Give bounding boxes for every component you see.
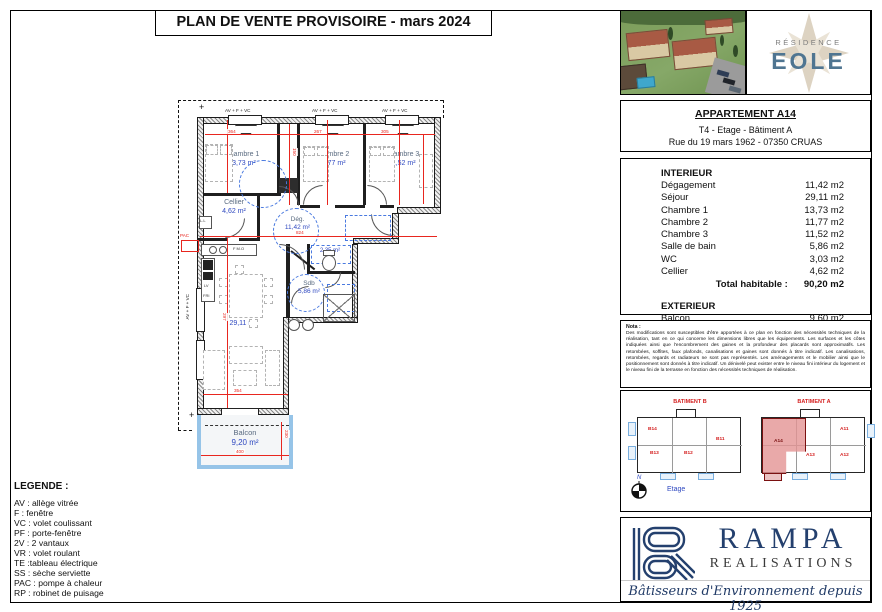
dimension-line [281, 422, 282, 460]
row-label: Séjour [661, 192, 688, 204]
unit-label-a13: A13 [806, 454, 815, 459]
pillow [370, 147, 381, 156]
row-value: 11,42 m2 [805, 180, 844, 192]
row-label: Dégagement [661, 180, 715, 192]
floor-label: Etage [667, 486, 685, 493]
dimension-line [201, 455, 289, 456]
unit-label-b12: B12 [684, 452, 693, 457]
dimension-line [399, 120, 400, 205]
heat-pump-box [181, 240, 199, 252]
washing-machine-label: L.L [200, 219, 206, 223]
unit-a14-highlight [762, 418, 806, 474]
balcony-facade-dashed [205, 425, 289, 426]
dimension-line [200, 236, 437, 237]
dimension-value: 354 [233, 388, 243, 393]
wall-corridor [300, 205, 320, 208]
legend-item: AV : allège vitrée [14, 499, 78, 508]
row-value: 5,86 m2 [810, 241, 844, 253]
row-value: 29,11 m2 [805, 192, 844, 204]
residence-aerial-photo [620, 10, 746, 95]
table-row: Salle de bain5,86 m2 [621, 241, 870, 253]
sofa-2 [229, 346, 263, 364]
compass-icon [629, 481, 649, 501]
nota-body: Des modifications sont susceptibles d'êt… [621, 330, 870, 376]
keyplan-building-b: B14 B11 B13 B12 [637, 417, 741, 473]
chair [235, 265, 244, 274]
window-label: AV + F + VC [312, 108, 337, 113]
window-label-vertical: AV + F + VC [185, 294, 190, 319]
toilet [322, 255, 336, 271]
heat-pump-label: PAC [180, 234, 189, 239]
legend-item: VC : volet coulissant [14, 519, 92, 528]
floor-plan: + + [175, 88, 470, 483]
dimension-value: 400 [235, 449, 245, 454]
table-row: Chambre 113,73 m2 [621, 205, 870, 217]
dimension-line [205, 134, 435, 135]
balcony-marker [698, 473, 714, 480]
rampa-subtitle: REALISATIONS [699, 556, 867, 572]
wall-exterior-step [397, 207, 441, 214]
unit-label-b11: B11 [716, 438, 725, 443]
rampa-logo-box: RAMPA REALISATIONS Bâtisseurs d'Environn… [620, 517, 871, 602]
nota-title: Nota : [621, 321, 870, 330]
window-shutter-icon [392, 125, 414, 134]
unit-label-a12: A12 [840, 454, 849, 459]
oven-icon [203, 272, 213, 280]
pillow [206, 145, 218, 155]
row-label: WC [661, 254, 677, 266]
pillow [220, 145, 232, 155]
dimension-line [227, 238, 228, 408]
balcony-marker [830, 473, 846, 480]
plan-de-vente-sheet: PLAN DE VENTE PROVISOIRE - mars 2024 RÉS… [0, 0, 882, 612]
total-label: Total habitable : [716, 278, 788, 291]
eole-name: EOLE [747, 48, 870, 75]
window-label: AV + F + VC [225, 108, 250, 113]
window-label: AV + F + VC [382, 108, 407, 113]
rampa-r-maze-icon [631, 526, 695, 582]
fridge-label: FRI [203, 294, 209, 298]
apartment-type-line: T4 - Etage - Bâtiment A [621, 124, 870, 136]
row-value: 11,77 m2 [805, 217, 844, 229]
survey-cross: + [189, 410, 194, 420]
dimension-line [289, 124, 290, 205]
dimension-value: 824 [295, 230, 305, 235]
room-area: 4,62 m² [209, 207, 259, 216]
dimension-value: 297 [221, 313, 228, 321]
chair [264, 295, 273, 304]
dimension-line [327, 120, 328, 205]
apartment-title: APPARTEMENT A14 [621, 108, 870, 120]
legend-item: RP : robinet de puisage [14, 589, 104, 598]
table-row: Séjour29,11 m2 [621, 192, 870, 204]
keyplan-box: BATIMENT B BATIMENT A B14 B11 B13 B12 [620, 390, 871, 512]
table-row: Cellier4,62 m2 [621, 266, 870, 278]
shower [323, 294, 355, 322]
window-chambre2 [315, 115, 349, 125]
turning-circle-sdb [287, 274, 325, 312]
balcony-marker [660, 473, 676, 480]
wall-chambre2-3-divider [363, 124, 366, 205]
legend-item: 2V : 2 vantaux [14, 539, 69, 548]
row-value: 13,73 m2 [804, 205, 844, 217]
photo-pool [636, 76, 655, 89]
table-row: WC3,03 m2 [621, 254, 870, 266]
tv-unit [265, 350, 280, 386]
areas-table-box: INTERIEUR Dégagement11,42 m2 Séjour29,11… [620, 158, 871, 315]
eole-residence-label: RÉSIDENCE [747, 38, 870, 47]
wall-kitchen-top [239, 238, 259, 241]
window-shutter-icon [235, 125, 257, 134]
nota-box: Nota : Des modifications sont susceptibl… [620, 320, 871, 388]
boundary-dashed-left [178, 100, 179, 430]
legend-item: PAC : pompe à chaleur [14, 579, 102, 588]
balcony-marker [628, 446, 636, 460]
wall-corridor [335, 205, 365, 208]
dimension-line [203, 394, 288, 395]
room-area: 9,20 m² [207, 438, 283, 448]
photo-cypress-2 [720, 35, 724, 46]
room-label-balcon: Balcon 9,20 m² [207, 428, 283, 448]
washbasin [302, 319, 314, 331]
wall-exterior-right [434, 117, 441, 213]
total-value: 90,20 m2 [804, 278, 844, 291]
total-habitable-row: Total habitable :90,20 m2 [621, 278, 870, 291]
window-chambre3 [385, 115, 419, 125]
building-a-stairwell [800, 409, 820, 418]
rampa-tagline: Bâtisseurs d'Environnement depuis 1925 [621, 580, 870, 612]
photo-building-1 [626, 29, 671, 61]
wall-cellier-bottom [197, 238, 227, 241]
survey-cross: + [199, 102, 204, 112]
balcony-marker [628, 422, 636, 436]
kitchen-sink [219, 246, 227, 254]
boundary-dashed-right [443, 100, 444, 118]
photo-house [704, 18, 733, 35]
row-value: 11,52 m2 [805, 229, 844, 241]
legend-item: F : fenêtre [14, 509, 53, 518]
wall-corridor [380, 205, 394, 208]
batiment-b-label: BATIMENT B [645, 399, 735, 405]
photo-cypress-1 [668, 27, 673, 40]
legend-item: VR : volet roulant [14, 549, 80, 558]
photo-cypress-3 [733, 45, 738, 57]
row-value: 4,62 m2 [810, 266, 844, 278]
door-arc-cellier [225, 218, 245, 238]
dining-table [229, 274, 263, 318]
kitchen-sink [209, 246, 217, 254]
coffee-table [233, 370, 257, 386]
row-label: Cellier [661, 266, 688, 278]
pillow [383, 147, 394, 156]
washbasin [288, 319, 300, 331]
row-label: Chambre 3 [661, 229, 708, 241]
building-b-stairwell [676, 409, 696, 418]
oven-microwave-label: F M.O [233, 247, 244, 251]
dimension-value: 305 [380, 129, 390, 134]
row-label: Chambre 1 [661, 205, 708, 217]
unit-label-b13: B13 [650, 452, 659, 457]
door-arc-chambre3 [367, 185, 387, 205]
oven-icon [203, 260, 213, 270]
legend-item: TE :tableau électrique [14, 559, 98, 568]
interior-section-title: INTERIEUR [621, 167, 870, 180]
eole-logo-box: RÉSIDENCE EOLE [746, 10, 871, 95]
pillow [304, 147, 315, 156]
boundary-dashed-top [178, 100, 443, 101]
balcony-marker [867, 424, 875, 438]
exterior-section-title: EXTERIEUR [621, 300, 870, 313]
row-label: Chambre 2 [661, 217, 708, 229]
rampa-name: RAMPA [699, 522, 867, 556]
dimension-line [423, 134, 424, 204]
legend-item: SS : sèche serviette [14, 569, 90, 578]
wall-sejour-right [283, 317, 289, 415]
closet-dashed-entrance [345, 215, 391, 241]
chair [264, 278, 273, 287]
dimension-value: 364 [227, 129, 237, 134]
unit-label-a14: A14 [774, 440, 783, 445]
row-value: 3,03 m2 [810, 254, 844, 266]
dishwasher-label: LV [204, 284, 209, 288]
row-label: Salle de bain [661, 241, 716, 253]
batiment-a-label: BATIMENT A [769, 399, 859, 405]
chair [249, 319, 258, 328]
apartment-address-line: Rue du 19 mars 1962 - 07350 CRUAS [621, 136, 870, 148]
dimension-value: 230 [283, 430, 290, 438]
boundary-dashed-corner [178, 430, 192, 431]
window-shutter-icon [322, 125, 344, 134]
sofa [203, 350, 225, 390]
apartment-header-box: APPARTEMENT A14 T4 - Etage - Bâtiment A … [620, 100, 871, 152]
dimension-value: 267 [313, 129, 323, 134]
legend-title: LEGENDE : [14, 481, 68, 492]
table-row: Dégagement11,42 m2 [621, 180, 870, 192]
dimension-value: 150 [291, 148, 298, 156]
page-title: PLAN DE VENTE PROVISOIRE - mars 2024 [156, 11, 491, 34]
keyplan-building-a: A11 A14 A13 A12 [761, 417, 865, 473]
unit-label-b14: B14 [648, 428, 657, 433]
turning-circle-chambre1 [239, 160, 287, 208]
title-box: PLAN DE VENTE PROVISOIRE - mars 2024 [155, 10, 492, 36]
wardrobe-chambre3 [419, 154, 433, 188]
legend-item: PF : porte-fenêtre [14, 529, 81, 538]
window-chambre1 [228, 115, 262, 125]
balcony-marker [792, 473, 808, 480]
unit-label-a11: A11 [840, 428, 849, 433]
unit-a14-balcony-highlight [764, 473, 782, 481]
table-row: Chambre 211,77 m2 [621, 217, 870, 229]
room-name: Balcon [207, 428, 283, 438]
table-row: Chambre 311,52 m2 [621, 229, 870, 241]
door-arc-chambre2 [303, 185, 323, 205]
